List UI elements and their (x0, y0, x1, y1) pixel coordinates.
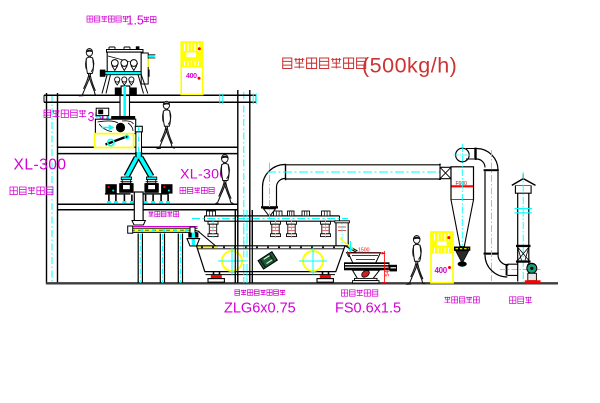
svg-text:(500kg/h): (500kg/h) (362, 54, 457, 78)
svg-text:400: 400 (435, 266, 448, 275)
svg-text:1500: 1500 (358, 247, 370, 253)
svg-text:ZLG6x0.75: ZLG6x0.75 (224, 301, 296, 317)
svg-text:XL-300: XL-300 (180, 167, 228, 183)
svg-text:XL-300: XL-300 (14, 157, 67, 174)
svg-text:1.5: 1.5 (127, 14, 144, 28)
svg-text:400: 400 (186, 73, 197, 80)
svg-text:540: 540 (385, 267, 391, 276)
svg-text:FS0.6x1.5: FS0.6x1.5 (335, 301, 401, 317)
svg-text:F600: F600 (456, 181, 468, 187)
